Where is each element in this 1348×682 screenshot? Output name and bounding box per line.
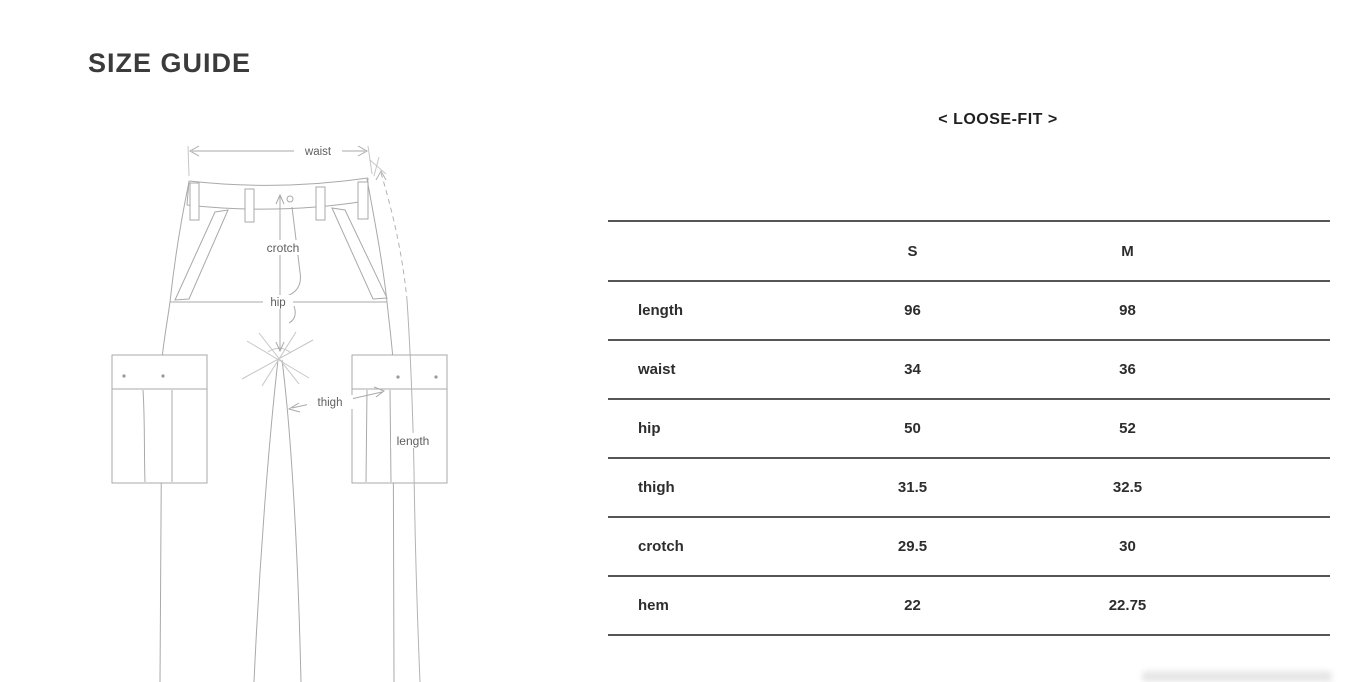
cell-pad	[1240, 458, 1330, 517]
cell-pad	[1240, 281, 1330, 340]
row-label: hem	[608, 576, 810, 635]
table-row: waist 34 36	[608, 340, 1330, 399]
cargo-pocket-right	[352, 355, 447, 483]
cell-s: 29.5	[810, 517, 1015, 576]
table-row: length 96 98	[608, 281, 1330, 340]
size-table: S M length 96 98 waist 34 36 hip 50 52	[608, 220, 1330, 636]
waist-label: waist	[294, 143, 342, 158]
cell-pad	[1240, 340, 1330, 399]
length-label-text: length	[397, 434, 430, 448]
crotch-cross-marks	[242, 332, 313, 386]
cell-s: 50	[810, 399, 1015, 458]
table-row: thigh 31.5 32.5	[608, 458, 1330, 517]
crotch-label: crotch	[259, 240, 307, 255]
crotch-dimension-line	[276, 195, 284, 351]
cell-m: 22.75	[1015, 576, 1240, 635]
waist-label-text: waist	[304, 146, 332, 158]
cargo-pocket-left	[112, 355, 207, 483]
cell-pad	[1240, 517, 1330, 576]
column-header-m: M	[1015, 221, 1240, 281]
table-row: hip 50 52	[608, 399, 1330, 458]
cell-m: 52	[1015, 399, 1240, 458]
crotch-label-text: crotch	[267, 241, 300, 255]
cell-m: 36	[1015, 340, 1240, 399]
leg-inner-seams	[254, 360, 301, 682]
row-label: waist	[608, 340, 810, 399]
hip-label-text: hip	[270, 297, 285, 309]
column-header-blank	[608, 221, 810, 281]
cell-s: 31.5	[810, 458, 1015, 517]
fit-label[interactable]: < LOOSE-FIT >	[868, 111, 1128, 129]
pants-diagram-svg: waist crotch hip	[85, 128, 495, 682]
row-label: thigh	[608, 458, 810, 517]
cell-pad	[1240, 576, 1330, 635]
page-title: SIZE GUIDE	[88, 48, 251, 79]
row-label: length	[608, 281, 810, 340]
table-row: hem 22 22.75	[608, 576, 1330, 635]
thigh-label: thigh	[307, 395, 353, 409]
thigh-label-text: thigh	[318, 397, 343, 409]
cell-m: 30	[1015, 517, 1240, 576]
cell-m: 98	[1015, 281, 1240, 340]
pants-measurement-diagram: waist crotch hip	[85, 128, 495, 682]
table-header-row: S M	[608, 221, 1330, 281]
column-header-pad	[1240, 221, 1330, 281]
waist-dimension-arrow	[188, 146, 372, 176]
column-header-s: S	[810, 221, 1015, 281]
waistband	[187, 178, 368, 209]
hip-label: hip	[263, 295, 293, 309]
cell-s: 34	[810, 340, 1015, 399]
table-row: crotch 29.5 30	[608, 517, 1330, 576]
cell-m: 32.5	[1015, 458, 1240, 517]
cell-pad	[1240, 399, 1330, 458]
row-label: crotch	[608, 517, 810, 576]
faint-watermark-smudge	[1142, 671, 1332, 682]
cell-s: 22	[810, 576, 1015, 635]
cell-s: 96	[810, 281, 1015, 340]
length-label: length	[391, 433, 437, 448]
row-label: hip	[608, 399, 810, 458]
size-guide-page: SIZE GUIDE	[0, 0, 1348, 682]
